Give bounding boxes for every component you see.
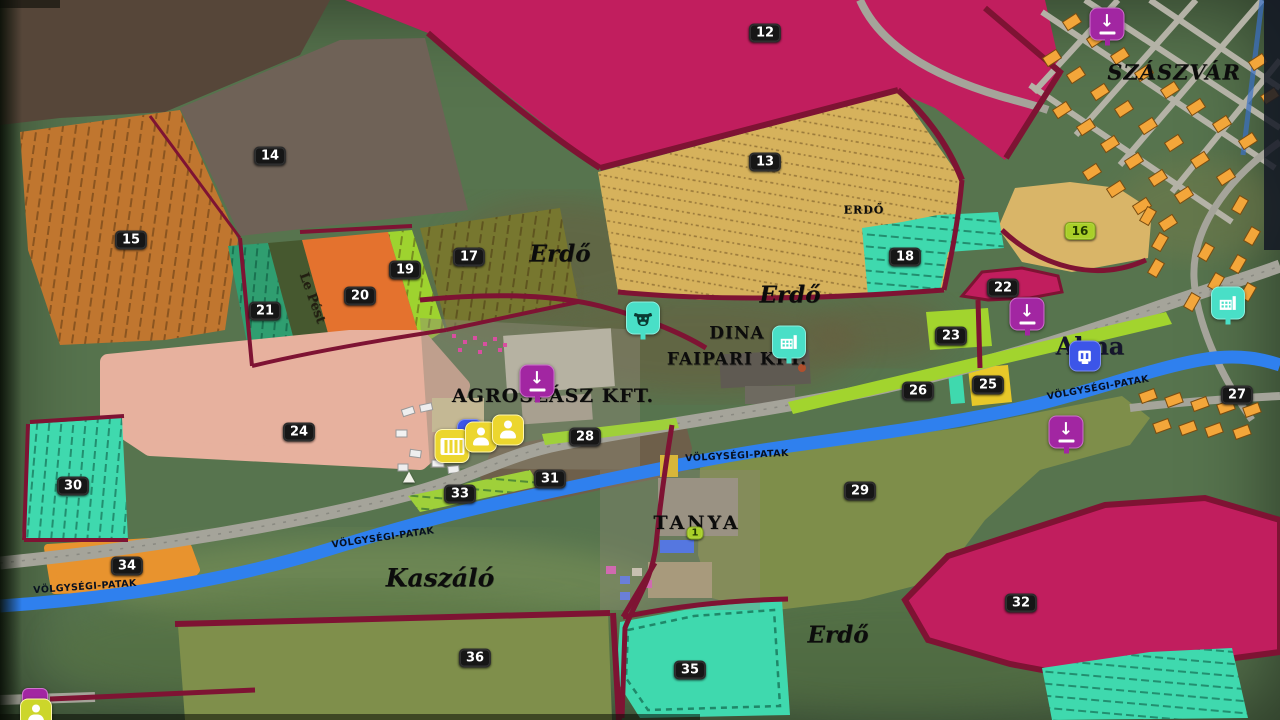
forest-label-caps: ERDŐ bbox=[844, 204, 885, 217]
field-badge-22[interactable]: 22 bbox=[987, 279, 1019, 298]
down-arrow-glyph: ↓ bbox=[1020, 303, 1034, 320]
field-badge-23[interactable]: 23 bbox=[935, 327, 967, 346]
field-badge-12[interactable]: 12 bbox=[749, 24, 781, 43]
down-arrow-glyph: ↓ bbox=[1059, 421, 1073, 438]
field-badge-14[interactable]: 14 bbox=[254, 147, 286, 166]
worker-icon-2[interactable] bbox=[492, 415, 524, 446]
factory-building-glyph bbox=[778, 331, 800, 353]
field-badge-27[interactable]: 27 bbox=[1221, 386, 1253, 405]
field-badge-17[interactable]: 17 bbox=[453, 248, 485, 267]
cow-pasture-icon[interactable] bbox=[626, 302, 660, 335]
field-area-36[interactable] bbox=[178, 612, 612, 720]
field-badge-35[interactable]: 35 bbox=[674, 661, 706, 680]
field-badge-36[interactable]: 36 bbox=[459, 649, 491, 668]
down-arrow-glyph: ↓ bbox=[1100, 13, 1114, 30]
field-badge-20[interactable]: 20 bbox=[344, 287, 376, 306]
field-badge-33[interactable]: 33 bbox=[444, 485, 476, 504]
factory-icon-east[interactable] bbox=[1211, 287, 1245, 320]
factory-building-glyph bbox=[1217, 292, 1239, 314]
sell-point-icon-agroszasz[interactable]: ↓ bbox=[520, 365, 555, 398]
field-badge-24[interactable]: 24 bbox=[283, 423, 315, 442]
field-badge-13[interactable]: 13 bbox=[749, 153, 781, 172]
person-glyph bbox=[473, 430, 489, 445]
meadow-label-kaszalo: Kaszáló bbox=[386, 564, 495, 593]
farmland-badge-1[interactable]: 1 bbox=[687, 527, 704, 540]
town-label: SZÁSZVÁR bbox=[1105, 60, 1243, 85]
forest-label-2: Erdő bbox=[759, 282, 820, 309]
field-badge-30[interactable]: 30 bbox=[57, 477, 89, 496]
garage-gate-glyph bbox=[440, 438, 464, 455]
sell-point-icon-southeast[interactable]: ↓ bbox=[1049, 416, 1084, 449]
factory-icon-dina[interactable] bbox=[772, 326, 806, 359]
field-badge-21[interactable]: 21 bbox=[249, 302, 281, 321]
field-badge-32[interactable]: 32 bbox=[1005, 594, 1037, 613]
down-arrow-glyph: ↓ bbox=[530, 370, 544, 387]
production-icon-alma[interactable] bbox=[1069, 341, 1101, 372]
sell-point-icon-town[interactable]: ↓ bbox=[1090, 8, 1125, 41]
field-badge-25[interactable]: 25 bbox=[972, 376, 1004, 395]
field-badge-31[interactable]: 31 bbox=[534, 470, 566, 489]
field-badge-16[interactable]: 16 bbox=[1065, 222, 1096, 240]
field-badge-28[interactable]: 28 bbox=[569, 428, 601, 447]
field-badge-29[interactable]: 29 bbox=[844, 482, 876, 501]
person-glyph bbox=[500, 423, 516, 438]
production-machine-glyph bbox=[1075, 346, 1095, 366]
forest-label-3: Erdő bbox=[807, 622, 868, 649]
person-glyph bbox=[28, 707, 44, 720]
worker-icon-southwest[interactable] bbox=[20, 699, 52, 720]
field-badge-26[interactable]: 26 bbox=[902, 382, 934, 401]
player-marker-icon[interactable] bbox=[403, 472, 415, 483]
game-map-view: SZÁSZVÁR ERDŐ Erdő Erdő Erdő DINA FAIPAR… bbox=[0, 0, 1280, 720]
field-badge-18[interactable]: 18 bbox=[889, 248, 921, 267]
field-badge-15[interactable]: 15 bbox=[115, 231, 147, 250]
field-badge-34[interactable]: 34 bbox=[111, 557, 143, 576]
forest-label-1: Erdő bbox=[529, 241, 590, 268]
sell-point-icon-east[interactable]: ↓ bbox=[1010, 298, 1045, 331]
cow-head-glyph bbox=[632, 307, 654, 329]
field-badge-19[interactable]: 19 bbox=[389, 261, 421, 280]
